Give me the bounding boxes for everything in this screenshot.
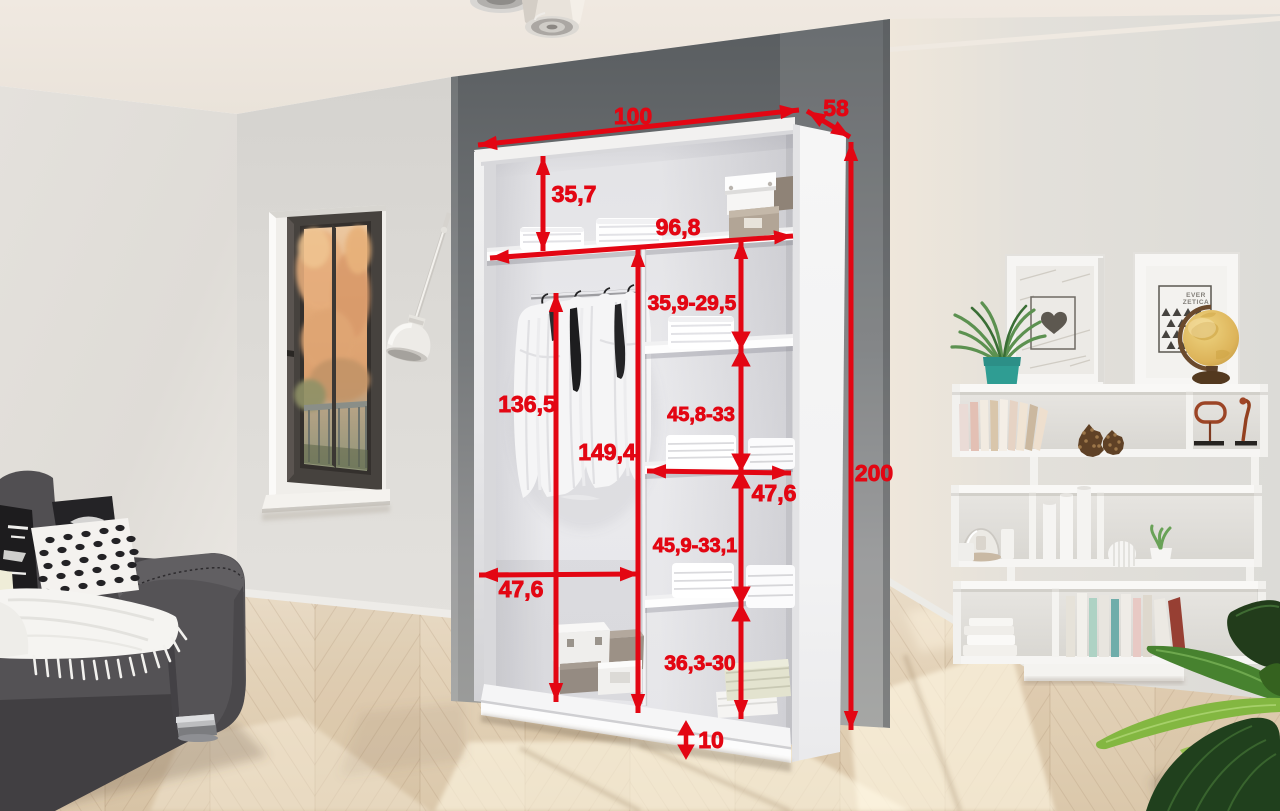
svg-text:EVER: EVER	[1186, 292, 1206, 299]
svg-text:100: 100	[614, 103, 652, 129]
svg-text:45,8-33: 45,8-33	[667, 404, 735, 426]
svg-text:35,9-29,5: 35,9-29,5	[648, 292, 737, 315]
svg-text:10: 10	[698, 727, 724, 753]
svg-text:136,5: 136,5	[498, 391, 556, 417]
svg-text:36,3-30: 36,3-30	[664, 652, 735, 675]
svg-text:45,9-33,1: 45,9-33,1	[653, 535, 738, 557]
svg-text:ZETICA: ZETICA	[1183, 299, 1209, 306]
svg-text:96,8: 96,8	[656, 214, 701, 240]
svg-text:35,7: 35,7	[552, 181, 597, 207]
svg-text:149,4: 149,4	[578, 439, 636, 465]
svg-text:47,6: 47,6	[752, 480, 797, 506]
svg-text:47,6: 47,6	[499, 576, 544, 602]
svg-text:200: 200	[855, 460, 893, 486]
svg-text:58: 58	[823, 95, 849, 121]
